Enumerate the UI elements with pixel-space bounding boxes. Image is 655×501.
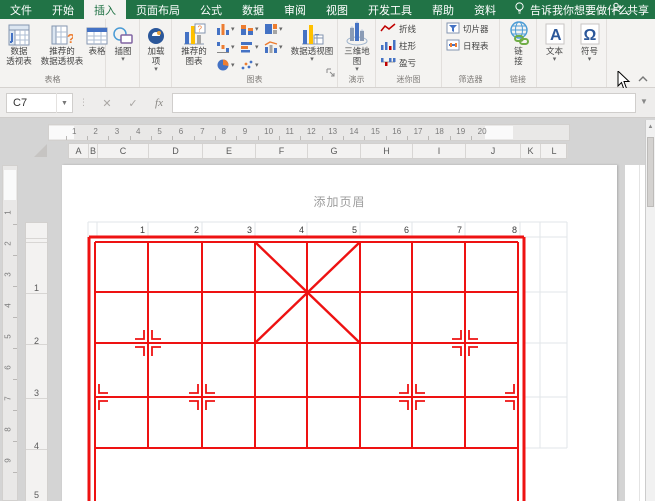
illustrations-button[interactable]: 插图▾ <box>108 20 138 63</box>
ruler-number: 14 <box>350 127 359 136</box>
formula-input[interactable] <box>172 93 636 113</box>
position-marker <box>135 330 144 339</box>
ruler-tick <box>13 472 17 473</box>
row-headers: 12345 <box>25 222 48 501</box>
group-label: 表格 <box>0 74 105 85</box>
ribbon-group-筛选器: 切片器日程表筛选器 <box>442 19 500 87</box>
symbols-button[interactable]: Ω符号▾ <box>574 20 605 63</box>
tab-插入[interactable]: 插入 <box>84 0 126 19</box>
button-label: 折线 <box>399 23 416 35</box>
cell-value: 5 <box>352 225 357 235</box>
row-header-1[interactable]: 1 <box>26 283 47 293</box>
ribbon-group-9: Ω符号▾ <box>572 19 607 87</box>
row-header-3[interactable]: 3 <box>26 388 47 398</box>
column-header-G[interactable]: G <box>308 144 361 158</box>
ruler-number: 6 <box>179 127 183 136</box>
button-label: 图表 <box>185 56 202 66</box>
ruler-number: 4 <box>4 303 13 307</box>
ruler-tick <box>450 136 451 140</box>
button-label: 切片器 <box>463 23 489 35</box>
ruler-tick <box>13 255 17 256</box>
ribbon-tab-bar: 文件开始插入页面布局公式数据审阅视图开发工具帮助资料 告诉我你想要做什么 共享 <box>0 0 655 19</box>
ruler-tick <box>87 136 88 140</box>
table-icon <box>86 20 108 46</box>
chevron-down-icon: ▾ <box>310 56 314 63</box>
lightbulb-icon <box>514 2 525 18</box>
ruler-tick <box>172 136 173 140</box>
pivotchart-icon <box>300 20 324 46</box>
ruler-tick <box>215 136 216 140</box>
ruler-tick <box>108 136 109 140</box>
group-label: 链接 <box>500 74 536 85</box>
position-marker <box>189 401 198 410</box>
cell-value: 6 <box>404 225 409 235</box>
ruler-number: 1 <box>4 210 13 214</box>
recommended-chart-icon: ? <box>182 20 206 46</box>
chevron-down-icon: ▾ <box>255 62 259 69</box>
ruler-tick <box>279 136 280 140</box>
collapse-ribbon-icon[interactable] <box>637 75 649 83</box>
chevron-down-icon: ▾ <box>121 56 125 63</box>
pivottable-button[interactable]: 数据透视表 <box>2 20 36 66</box>
ruler-number: 16 <box>392 127 401 136</box>
button-label: 日程表 <box>463 40 489 52</box>
column-headers: ABCDEFGHIJKL <box>68 143 567 159</box>
addin-icon <box>146 20 166 46</box>
chevron-down-icon: ▾ <box>231 26 235 33</box>
insert-column-chart-button[interactable]: ▾ <box>216 21 238 37</box>
cell-value: 2 <box>194 225 199 235</box>
group-label: 迷你图 <box>376 74 441 85</box>
row-header-divider <box>26 398 47 399</box>
ruler-number: 5 <box>4 334 13 338</box>
person-icon <box>611 2 623 17</box>
svg-text:?: ? <box>67 31 73 46</box>
svg-text:?: ? <box>198 25 203 34</box>
row-header-4[interactable]: 4 <box>26 441 47 451</box>
tab-文件[interactable]: 文件 <box>0 0 42 19</box>
textbox-icon: A <box>544 20 566 46</box>
column-header-H[interactable]: H <box>361 144 413 158</box>
link-icon <box>507 20 531 46</box>
column-header-L[interactable]: L <box>541 144 568 158</box>
ruler-tick <box>407 136 408 140</box>
ruler-number: 5 <box>157 127 161 136</box>
ribbon-group-演示: 三维地图▾演示 <box>338 19 376 87</box>
vertical-ruler: 123456789 <box>2 165 18 501</box>
button-label: 盈亏 <box>399 57 416 69</box>
ruler-tick <box>428 136 429 140</box>
position-marker <box>452 347 461 356</box>
cell-value: 1 <box>140 225 145 235</box>
cell-value: 8 <box>512 225 517 235</box>
cell-value: 3 <box>247 225 252 235</box>
tab-开始[interactable]: 开始 <box>42 0 84 19</box>
button-label: 接 <box>514 56 523 66</box>
button-label: 表格 <box>88 46 105 56</box>
ribbon-group-链接: 链接链接 <box>500 19 537 87</box>
ruler-tick <box>258 136 259 140</box>
link-button[interactable]: 链接 <box>502 20 535 66</box>
vertical-scrollbar[interactable]: ▲ <box>645 120 655 501</box>
position-marker <box>152 330 161 339</box>
position-marker <box>99 401 108 410</box>
tab-帮助[interactable]: 帮助 <box>422 0 464 19</box>
tab-公式[interactable]: 公式 <box>190 0 232 19</box>
tab-数据[interactable]: 数据 <box>232 0 274 19</box>
tab-开发工具[interactable]: 开发工具 <box>358 0 422 19</box>
ruler-number: 13 <box>328 127 337 136</box>
position-marker <box>416 401 425 410</box>
button-label: 项 <box>152 56 161 66</box>
share-label: 共享 <box>627 2 649 18</box>
insert-waterfall-chart-button[interactable]: ▾ <box>264 21 286 37</box>
ruler-tick <box>13 224 17 225</box>
ruler-number: 1 <box>72 127 76 136</box>
column-header-I[interactable]: I <box>413 144 466 158</box>
cancel-button[interactable]: ✕ <box>96 93 118 113</box>
row-header-divider <box>26 293 47 294</box>
position-marker <box>206 401 215 410</box>
position-marker <box>505 384 514 393</box>
chevron-down-icon: ▾ <box>588 56 592 63</box>
ruler-margin <box>485 126 513 139</box>
ruler-number: 2 <box>93 127 97 136</box>
insert-scatter-chart-button[interactable]: ▾ <box>240 57 262 73</box>
column-header-E[interactable]: E <box>203 144 256 158</box>
ruler-tick <box>13 286 17 287</box>
scrollbar-thumb[interactable] <box>647 137 654 207</box>
column-header-F[interactable]: F <box>256 144 308 158</box>
dialog-launcher-icon[interactable] <box>326 64 335 73</box>
button-label: 图 <box>353 56 362 66</box>
ruler-margin <box>49 126 74 139</box>
ruler-tick <box>13 379 17 380</box>
ribbon-group-表格: 数据透视表?推荐的数据透视表表格表格 <box>0 19 106 87</box>
ruler-tick <box>130 136 131 140</box>
pivottable-icon <box>8 20 30 46</box>
chevron-down-icon: ▾ <box>255 26 259 33</box>
timeline-button[interactable]: 日程表 <box>446 39 489 53</box>
omega-icon: Ω <box>579 20 601 46</box>
column-header-J[interactable]: J <box>466 144 521 158</box>
ruler-tick <box>236 136 237 140</box>
slicer-icon <box>446 22 460 36</box>
timeline-icon <box>446 39 460 53</box>
row-header-5[interactable]: 5 <box>26 490 47 500</box>
ruler-number: 11 <box>286 127 294 136</box>
chessboard-drawing: 12345678 <box>62 165 617 501</box>
ruler-tick <box>194 136 195 140</box>
group-label: 筛选器 <box>442 74 499 85</box>
position-marker <box>469 347 478 356</box>
recommended-pivottables-button[interactable]: ?推荐的数据透视表 <box>36 20 88 66</box>
position-marker <box>135 347 144 356</box>
recommended-pivottable-icon: ? <box>51 20 73 46</box>
add-ins-button[interactable]: 加载项▾ <box>142 20 170 73</box>
button-label: 透视表 <box>6 56 32 66</box>
tab-审阅[interactable]: 审阅 <box>274 0 316 19</box>
button-label: 数据 <box>10 46 27 56</box>
ruler-tick <box>300 136 301 140</box>
group-label: 图表 <box>172 74 337 85</box>
sparkline-column-button[interactable]: 柱形 <box>380 39 416 53</box>
ruler-tick <box>364 136 365 140</box>
insert-function-button[interactable]: fx <box>148 93 170 113</box>
row-header-divider <box>26 238 47 239</box>
ruler-margin <box>4 170 16 200</box>
button-label: 符号 <box>581 46 598 56</box>
select-all-corner[interactable] <box>34 144 47 157</box>
tab-资料[interactable]: 资料 <box>464 0 506 19</box>
column-header-B[interactable]: B <box>89 144 98 158</box>
chevron-down-icon: ▾ <box>355 66 359 73</box>
column-header-K[interactable]: K <box>521 144 541 158</box>
ribbon-group-图表: ?推荐的图表数据透视图▾▾▾▾▾▾▾▾▾图表 <box>172 19 338 87</box>
recommended-charts-button[interactable]: ?推荐的图表 <box>174 20 214 66</box>
horizontal-ruler: 1234567891011121314151617181920 <box>48 124 570 141</box>
insert-line-chart-button[interactable]: ▾ <box>216 39 238 55</box>
position-marker <box>505 401 514 410</box>
chevron-down-icon: ▾ <box>279 26 283 33</box>
ruler-number: 12 <box>307 127 316 136</box>
position-marker <box>189 384 198 393</box>
chevron-down-icon: ▾ <box>553 56 557 63</box>
ruler-number: 15 <box>371 127 380 136</box>
column-header-C[interactable]: C <box>98 144 149 158</box>
position-marker <box>452 330 461 339</box>
sparkline-winloss-button[interactable]: 盈亏 <box>380 56 416 70</box>
3d-map-button[interactable]: 三维地图▾ <box>340 20 374 73</box>
next-page-edge <box>625 165 645 501</box>
position-marker <box>399 384 408 393</box>
ruler-number: 6 <box>4 365 13 369</box>
position-marker <box>206 384 215 393</box>
ruler-tick <box>343 136 344 140</box>
chevron-down-icon: ▾ <box>255 44 259 51</box>
insert-combo-chart-button[interactable]: ▾ <box>264 39 286 55</box>
ruler-number: 3 <box>4 272 13 276</box>
ruler-number: 19 <box>456 127 465 136</box>
chevron-down-icon: ▾ <box>279 44 283 51</box>
ruler-tick <box>13 348 17 349</box>
chevron-down-icon: ▾ <box>231 62 235 69</box>
svg-text:A: A <box>550 27 562 44</box>
sheet-page[interactable]: 添加页眉 12345678 <box>62 165 617 501</box>
ruler-number: 20 <box>478 127 487 136</box>
ribbon-group-迷你图: 折线柱形盈亏迷你图 <box>376 19 442 87</box>
button-label: 数据透视表 <box>41 56 84 66</box>
position-marker <box>469 330 478 339</box>
ruler-tick <box>151 136 152 140</box>
ruler-number: 18 <box>435 127 444 136</box>
column-header-A[interactable]: A <box>69 144 89 158</box>
tab-页面布局[interactable]: 页面布局 <box>126 0 190 19</box>
name-box-caret-icon[interactable]: ▼ <box>56 93 72 113</box>
table-button[interactable]: 表格 <box>88 20 106 56</box>
ruler-number: 7 <box>200 127 204 136</box>
ribbon-group-2: 加载项▾ <box>140 19 172 87</box>
ruler-tick <box>13 317 17 318</box>
sparkline-column-icon <box>380 39 396 53</box>
ruler-tick <box>13 410 17 411</box>
text-button[interactable]: A文本▾ <box>539 20 570 63</box>
scroll-up-icon[interactable]: ▲ <box>646 120 655 135</box>
ruler-number: 3 <box>115 127 119 136</box>
pivotchart-button[interactable]: 数据透视图▾ <box>288 20 336 63</box>
ruler-tick <box>471 136 472 140</box>
chevron-down-icon: ▾ <box>154 66 158 73</box>
ruler-number: 17 <box>414 127 423 136</box>
button-label: 插图 <box>114 46 131 56</box>
position-marker <box>416 384 425 393</box>
ruler-number: 4 <box>136 127 140 136</box>
enter-button[interactable]: ✓ <box>122 93 144 113</box>
row-header-2[interactable]: 2 <box>26 336 47 346</box>
button-label: 推荐的 <box>49 46 75 56</box>
ruler-number: 7 <box>4 396 13 400</box>
cell-value: 7 <box>457 225 462 235</box>
button-label: 三维地 <box>344 46 370 56</box>
column-header-D[interactable]: D <box>149 144 203 158</box>
ruler-tick <box>386 136 387 140</box>
position-marker <box>399 401 408 410</box>
ruler-number: 8 <box>4 427 13 431</box>
insert-bar-chart-button[interactable]: ▾ <box>240 39 262 55</box>
map3d-icon <box>345 20 369 46</box>
ruler-number: 9 <box>243 127 247 136</box>
group-label: 演示 <box>338 74 375 85</box>
button-label: 链 <box>514 46 523 56</box>
insert-hierarchy-chart-button[interactable]: ▾ <box>240 21 262 37</box>
button-label: 数据透视图 <box>291 46 334 56</box>
insert-pie-chart-button[interactable]: ▾ <box>216 57 238 73</box>
ruler-number: 10 <box>264 127 273 136</box>
ruler-tick <box>13 441 17 442</box>
formula-bar-divider: ⋮ <box>79 97 88 108</box>
row-header-divider <box>26 242 47 243</box>
formula-bar: C7 ▼ ⋮ ✕ ✓ fx ▼ <box>0 88 655 118</box>
position-marker <box>99 384 108 393</box>
share-button[interactable]: 共享 <box>611 0 649 19</box>
shapes-icon <box>112 20 134 46</box>
position-marker <box>152 347 161 356</box>
ribbon: 数据透视表?推荐的数据透视表表格表格插图▾加载项▾?推荐的图表数据透视图▾▾▾▾… <box>0 19 655 88</box>
sparkline-line-button[interactable]: 折线 <box>380 22 416 36</box>
ruler-number: 8 <box>221 127 225 136</box>
ribbon-group-8: A文本▾ <box>537 19 572 87</box>
button-label: 推荐的 <box>181 46 207 56</box>
formula-bar-expand-icon[interactable]: ▼ <box>640 97 648 106</box>
button-label: 柱形 <box>399 40 416 52</box>
excel-window: 文件开始插入页面布局公式数据审阅视图开发工具帮助资料 告诉我你想要做什么 共享 … <box>0 0 655 501</box>
tab-视图[interactable]: 视图 <box>316 0 358 19</box>
ruler-tick <box>66 136 67 140</box>
ribbon-group-1: 插图▾ <box>106 19 140 87</box>
ruler-number: 9 <box>4 458 13 462</box>
ruler-tick <box>322 136 323 140</box>
sparkline-winloss-icon <box>380 56 396 70</box>
cell-value: 4 <box>299 225 304 235</box>
slicer-button[interactable]: 切片器 <box>446 22 489 36</box>
button-label: 加载 <box>147 46 164 56</box>
sparkline-line-icon <box>380 22 396 36</box>
button-label: 文本 <box>546 46 563 56</box>
svg-text:Ω: Ω <box>583 27 596 44</box>
ruler-number: 2 <box>4 241 13 245</box>
chevron-down-icon: ▾ <box>231 44 235 51</box>
